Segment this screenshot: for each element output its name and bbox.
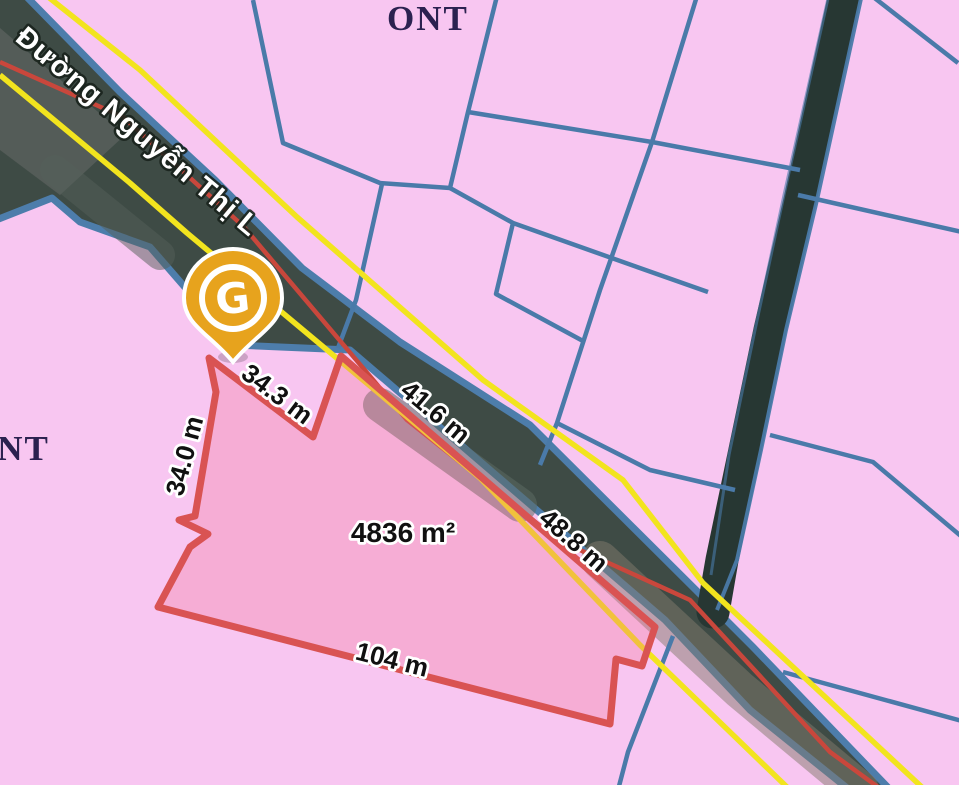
pin-brand-letter: G — [213, 272, 252, 324]
plot-area-label: 4836 m² — [351, 517, 455, 548]
cadastral-map-canvas: Đường Nguyễn Thị L ONT ONT 34.3 m 41.6 m… — [0, 0, 959, 785]
zone-label-ont-top: ONT — [387, 0, 469, 38]
zone-label-ont-left: ONT — [0, 429, 50, 468]
map-viewport[interactable]: Đường Nguyễn Thị L ONT ONT 34.3 m 41.6 m… — [0, 0, 959, 785]
